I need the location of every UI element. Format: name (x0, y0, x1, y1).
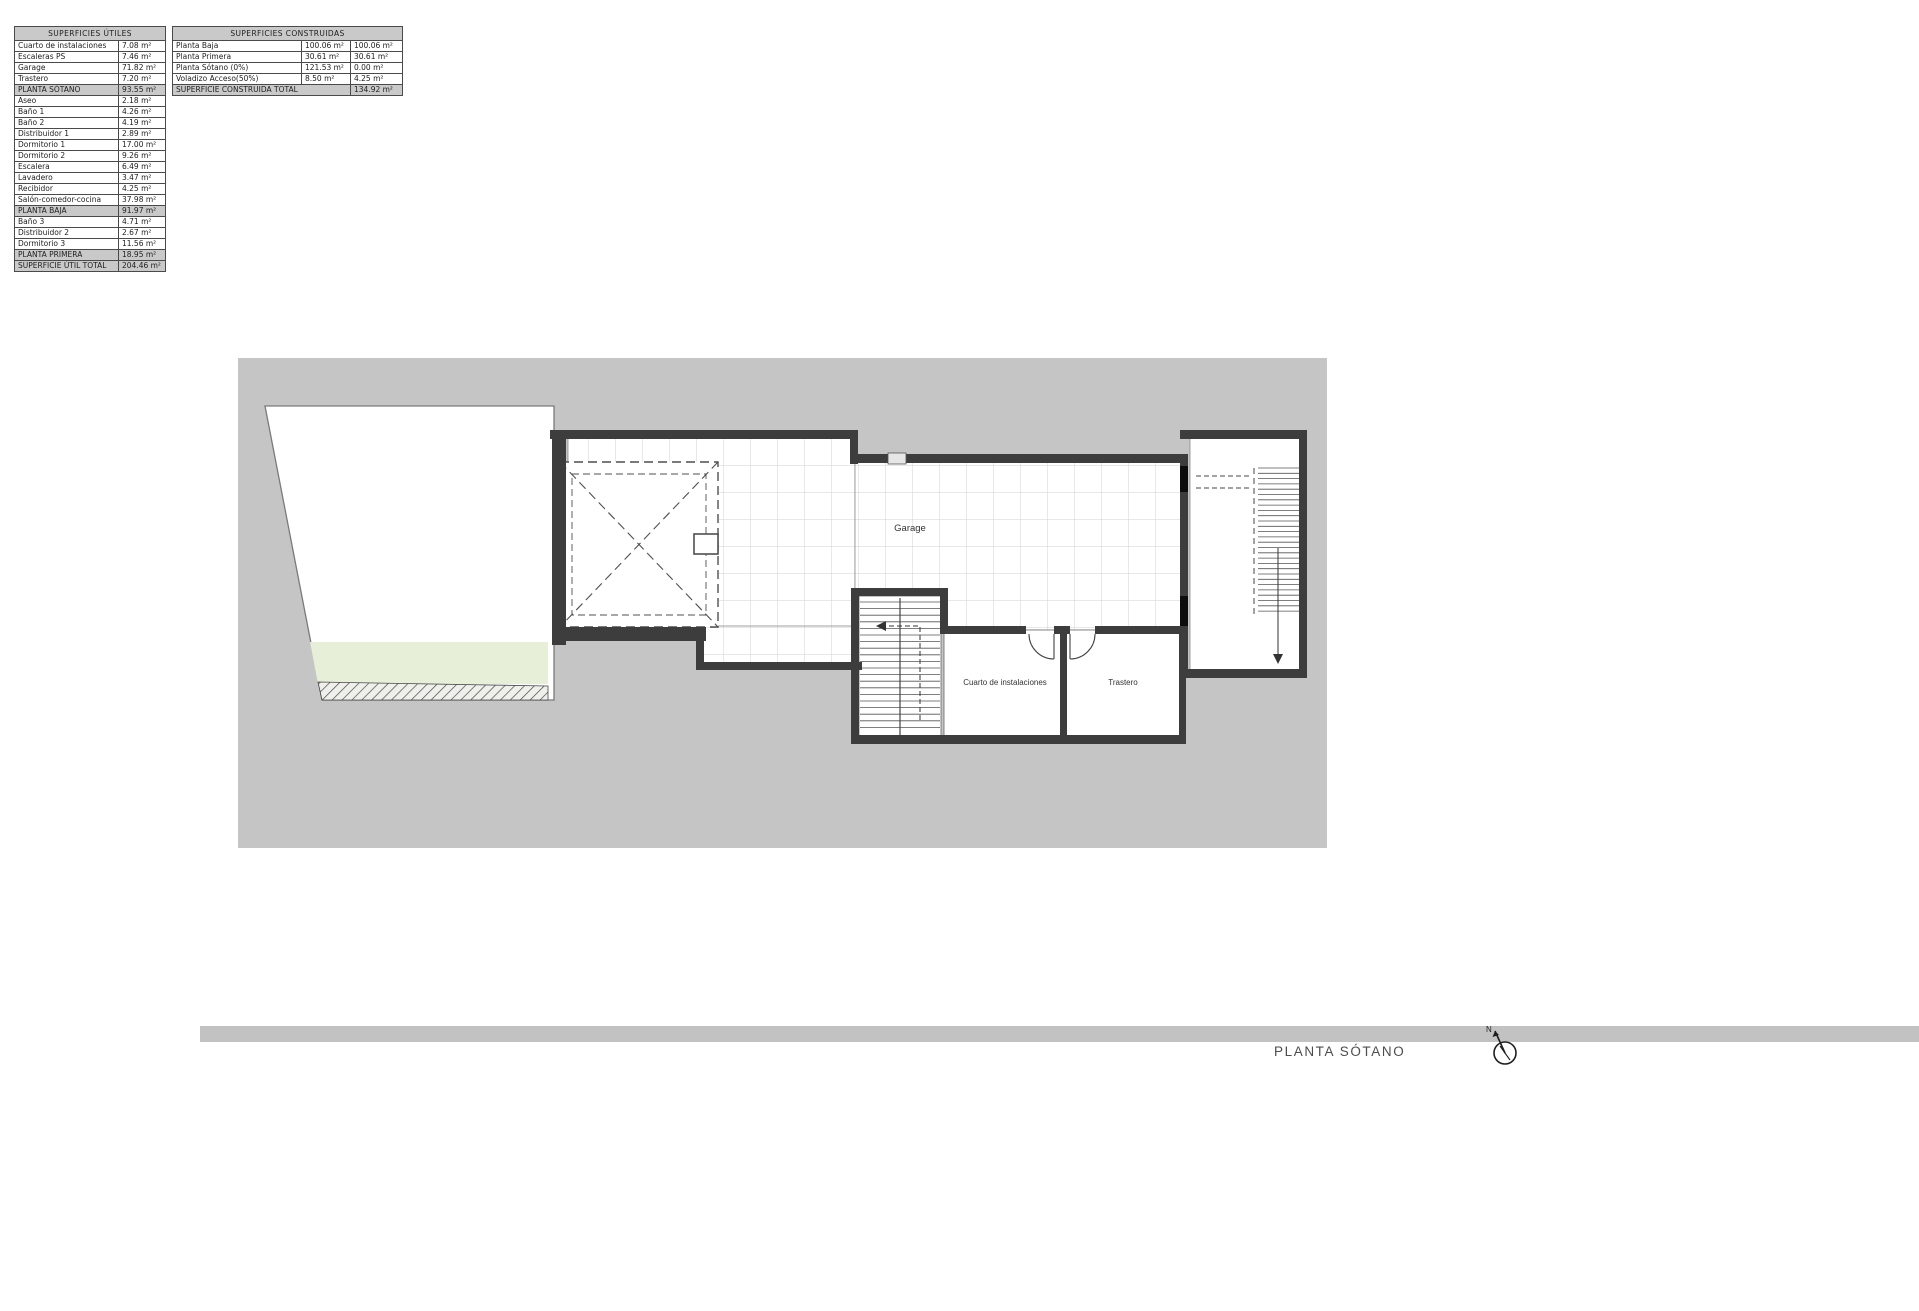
table-row: Planta Baja100.06 m²100.06 m² (173, 41, 403, 52)
north-arrow-icon: N (1482, 1022, 1526, 1070)
row-label: Escalera (15, 162, 119, 173)
row-label: Distribuidor 2 (15, 228, 119, 239)
table-row: Planta Sótano (0%)121.53 m²0.00 m² (173, 63, 403, 74)
row-value: 18.95 m² (119, 250, 166, 261)
row-value: 7.20 m² (119, 74, 166, 85)
row-label: Recibidor (15, 184, 119, 195)
row-value-built: 30.61 m² (302, 52, 351, 63)
row-value-computed: 4.25 m² (351, 74, 403, 85)
row-value-built: 100.06 m² (302, 41, 351, 52)
table-row: PLANTA PRIMERA18.95 m² (15, 250, 166, 261)
table-title-row: SUPERFICIES CONSTRUIDAS (173, 27, 403, 41)
row-label: Cuarto de instalaciones (15, 41, 119, 52)
row-label: Salón-comedor-cocina (15, 195, 119, 206)
row-value: 6.49 m² (119, 162, 166, 173)
row-label: Baño 2 (15, 118, 119, 129)
row-label: Dormitorio 2 (15, 151, 119, 162)
row-value: 71.82 m² (119, 63, 166, 74)
total-value: 134.92 m² (351, 85, 403, 96)
room-label-trastero: Trastero (1108, 678, 1138, 687)
superficies-utiles-table: SUPERFICIES ÚTILES Cuarto de instalacion… (14, 26, 166, 272)
row-value: 11.56 m² (119, 239, 166, 250)
void-handle (694, 534, 718, 554)
row-value: 4.19 m² (119, 118, 166, 129)
row-value: 7.08 m² (119, 41, 166, 52)
table-title-row: SUPERFICIES ÚTILES (15, 27, 166, 41)
row-label: Planta Sótano (0%) (173, 63, 302, 74)
row-label: Escaleras PS (15, 52, 119, 63)
row-value: 9.26 m² (119, 151, 166, 162)
table-row: Dormitorio 311.56 m² (15, 239, 166, 250)
wall-opening (888, 453, 906, 464)
table-row: PLANTA BAJA91.97 m² (15, 206, 166, 217)
superficies-construidas-table: SUPERFICIES CONSTRUIDAS Planta Baja100.0… (172, 26, 403, 96)
row-value: 93.55 m² (119, 85, 166, 96)
table-row: Distribuidor 22.67 m² (15, 228, 166, 239)
table-row: Escaleras PS7.46 m² (15, 52, 166, 63)
row-label: Baño 3 (15, 217, 119, 228)
row-value: 17.00 m² (119, 140, 166, 151)
table-row: Lavadero3.47 m² (15, 173, 166, 184)
table-row: Dormitorio 29.26 m² (15, 151, 166, 162)
table-row: Salón-comedor-cocina37.98 m² (15, 195, 166, 206)
row-value-computed: 30.61 m² (351, 52, 403, 63)
table-row: Distribuidor 12.89 m² (15, 129, 166, 140)
row-value: 3.47 m² (119, 173, 166, 184)
row-value: 4.25 m² (119, 184, 166, 195)
row-label: SUPERFICIE ÚTIL TOTAL (15, 261, 119, 272)
table-row: Baño 14.26 m² (15, 107, 166, 118)
table-row: Baño 34.71 m² (15, 217, 166, 228)
row-label: Dormitorio 1 (15, 140, 119, 151)
total-label: SUPERFICIE CONSTRUIDA TOTAL (173, 85, 351, 96)
row-label: Planta Primera (173, 52, 302, 63)
table-row: Recibidor4.25 m² (15, 184, 166, 195)
table-row: PLANTA SÓTANO93.55 m² (15, 85, 166, 96)
row-label: Dormitorio 3 (15, 239, 119, 250)
row-label: Garage (15, 63, 119, 74)
stair-room (859, 596, 941, 737)
sheet-title: PLANTA SÓTANO (1274, 1044, 1405, 1059)
table-row: Baño 24.19 m² (15, 118, 166, 129)
table-title: SUPERFICIES ÚTILES (15, 27, 166, 41)
row-label: Planta Baja (173, 41, 302, 52)
row-label: PLANTA PRIMERA (15, 250, 119, 261)
row-label: Trastero (15, 74, 119, 85)
row-value-computed: 0.00 m² (351, 63, 403, 74)
row-value: 204.46 m² (119, 261, 166, 272)
titleblock-divider (200, 1026, 1919, 1042)
row-value-computed: 100.06 m² (351, 41, 403, 52)
row-value: 37.98 m² (119, 195, 166, 206)
table-title: SUPERFICIES CONSTRUIDAS (173, 27, 403, 41)
table-row: Garage71.82 m² (15, 63, 166, 74)
row-label: PLANTA SÓTANO (15, 85, 119, 96)
void-square (560, 462, 718, 627)
row-label: Distribuidor 1 (15, 129, 119, 140)
table-row: Voladizo Acceso(50%)8.50 m²4.25 m² (173, 74, 403, 85)
table-row: Escalera6.49 m² (15, 162, 166, 173)
row-value: 2.67 m² (119, 228, 166, 239)
room-label-garage: Garage (894, 523, 926, 534)
table-row: Dormitorio 117.00 m² (15, 140, 166, 151)
table-row: Aseo2.18 m² (15, 96, 166, 107)
row-value: 2.89 m² (119, 129, 166, 140)
garden-strip (310, 642, 548, 684)
row-value: 7.46 m² (119, 52, 166, 63)
table-row: SUPERFICIE ÚTIL TOTAL204.46 m² (15, 261, 166, 272)
row-label: Voladizo Acceso(50%) (173, 74, 302, 85)
room-label-cuarto: Cuarto de instalaciones (963, 678, 1047, 687)
row-value: 2.18 m² (119, 96, 166, 107)
row-value: 91.97 m² (119, 206, 166, 217)
row-value-built: 8.50 m² (302, 74, 351, 85)
table-total-row: SUPERFICIE CONSTRUIDA TOTAL134.92 m² (173, 85, 403, 96)
svg-text:N: N (1486, 1025, 1492, 1034)
table-row: Planta Primera30.61 m²30.61 m² (173, 52, 403, 63)
row-label: Baño 1 (15, 107, 119, 118)
row-value-built: 121.53 m² (302, 63, 351, 74)
table-row: Trastero7.20 m² (15, 74, 166, 85)
table-row: Cuarto de instalaciones7.08 m² (15, 41, 166, 52)
floor-plan-drawing: Garage Cuarto de instalaciones Trastero (238, 358, 1327, 848)
floor-plan: Garage Cuarto de instalaciones Trastero (238, 358, 1327, 848)
row-label: PLANTA BAJA (15, 206, 119, 217)
row-label: Lavadero (15, 173, 119, 184)
row-value: 4.71 m² (119, 217, 166, 228)
row-label: Aseo (15, 96, 119, 107)
row-value: 4.26 m² (119, 107, 166, 118)
